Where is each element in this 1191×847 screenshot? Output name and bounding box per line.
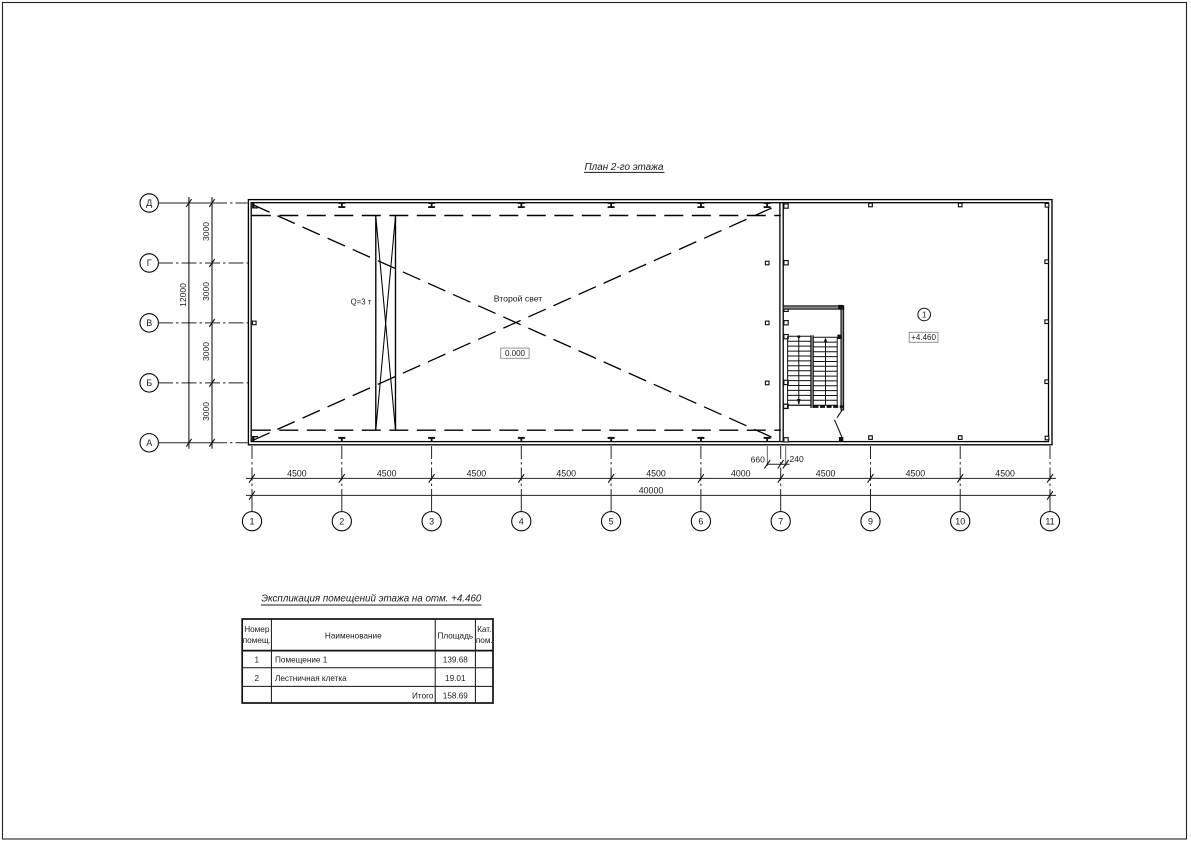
svg-text:А: А <box>146 438 152 448</box>
svg-text:4500: 4500 <box>995 468 1015 478</box>
svg-text:4500: 4500 <box>906 468 926 478</box>
svg-text:4500: 4500 <box>287 468 307 478</box>
svg-text:4500: 4500 <box>816 468 836 478</box>
svg-text:240: 240 <box>790 454 804 464</box>
svg-text:7: 7 <box>778 516 783 526</box>
svg-text:6: 6 <box>698 516 703 526</box>
svg-text:660: 660 <box>751 454 765 464</box>
svg-text:Помещение 1: Помещение 1 <box>275 656 328 665</box>
svg-text:Итого: Итого <box>412 692 434 701</box>
svg-text:План 2-го этажа: План 2-го этажа <box>585 162 664 173</box>
svg-text:3: 3 <box>429 516 434 526</box>
svg-text:Г: Г <box>147 258 152 268</box>
svg-text:3000: 3000 <box>201 282 211 301</box>
svg-text:3000: 3000 <box>201 402 211 421</box>
svg-text:помещ.: помещ. <box>243 636 271 645</box>
svg-text:2: 2 <box>339 516 344 526</box>
svg-text:19.01: 19.01 <box>445 674 466 683</box>
svg-text:40000: 40000 <box>639 485 664 495</box>
svg-text:Площадь: Площадь <box>437 632 473 641</box>
svg-text:4500: 4500 <box>556 468 576 478</box>
svg-text:В: В <box>146 318 152 328</box>
svg-text:4: 4 <box>519 516 524 526</box>
svg-text:3000: 3000 <box>201 342 211 361</box>
svg-text:Б: Б <box>146 378 152 388</box>
svg-text:4500: 4500 <box>646 468 666 478</box>
svg-text:Д: Д <box>146 198 152 208</box>
svg-text:4500: 4500 <box>377 468 397 478</box>
svg-text:4000: 4000 <box>731 468 751 478</box>
svg-text:2: 2 <box>255 674 260 683</box>
svg-text:Экспликация помещений этажа на: Экспликация помещений этажа на отм. +4.4… <box>261 594 482 605</box>
svg-text:Кат.: Кат. <box>477 625 491 634</box>
svg-text:158.69: 158.69 <box>443 692 468 701</box>
svg-text:Q=3 т: Q=3 т <box>351 298 372 307</box>
svg-text:Второй свет: Второй свет <box>494 294 543 304</box>
svg-text:5: 5 <box>609 516 614 526</box>
svg-text:11: 11 <box>1045 516 1054 526</box>
svg-text:Лестничная клетка: Лестничная клетка <box>275 674 347 683</box>
svg-text:1: 1 <box>255 656 260 665</box>
svg-text:139.68: 139.68 <box>443 656 468 665</box>
svg-text:4500: 4500 <box>467 468 487 478</box>
svg-text:1: 1 <box>249 516 254 526</box>
svg-text:0.000: 0.000 <box>505 349 526 358</box>
svg-text:1: 1 <box>922 311 927 320</box>
svg-text:+4.460: +4.460 <box>911 333 936 342</box>
svg-text:3000: 3000 <box>201 222 211 241</box>
svg-text:Номер: Номер <box>244 625 270 634</box>
svg-text:9: 9 <box>868 516 873 526</box>
svg-text:12000: 12000 <box>178 283 188 307</box>
svg-text:10: 10 <box>955 516 965 526</box>
svg-text:Наименование: Наименование <box>325 632 382 641</box>
svg-text:пом.: пом. <box>476 636 493 645</box>
